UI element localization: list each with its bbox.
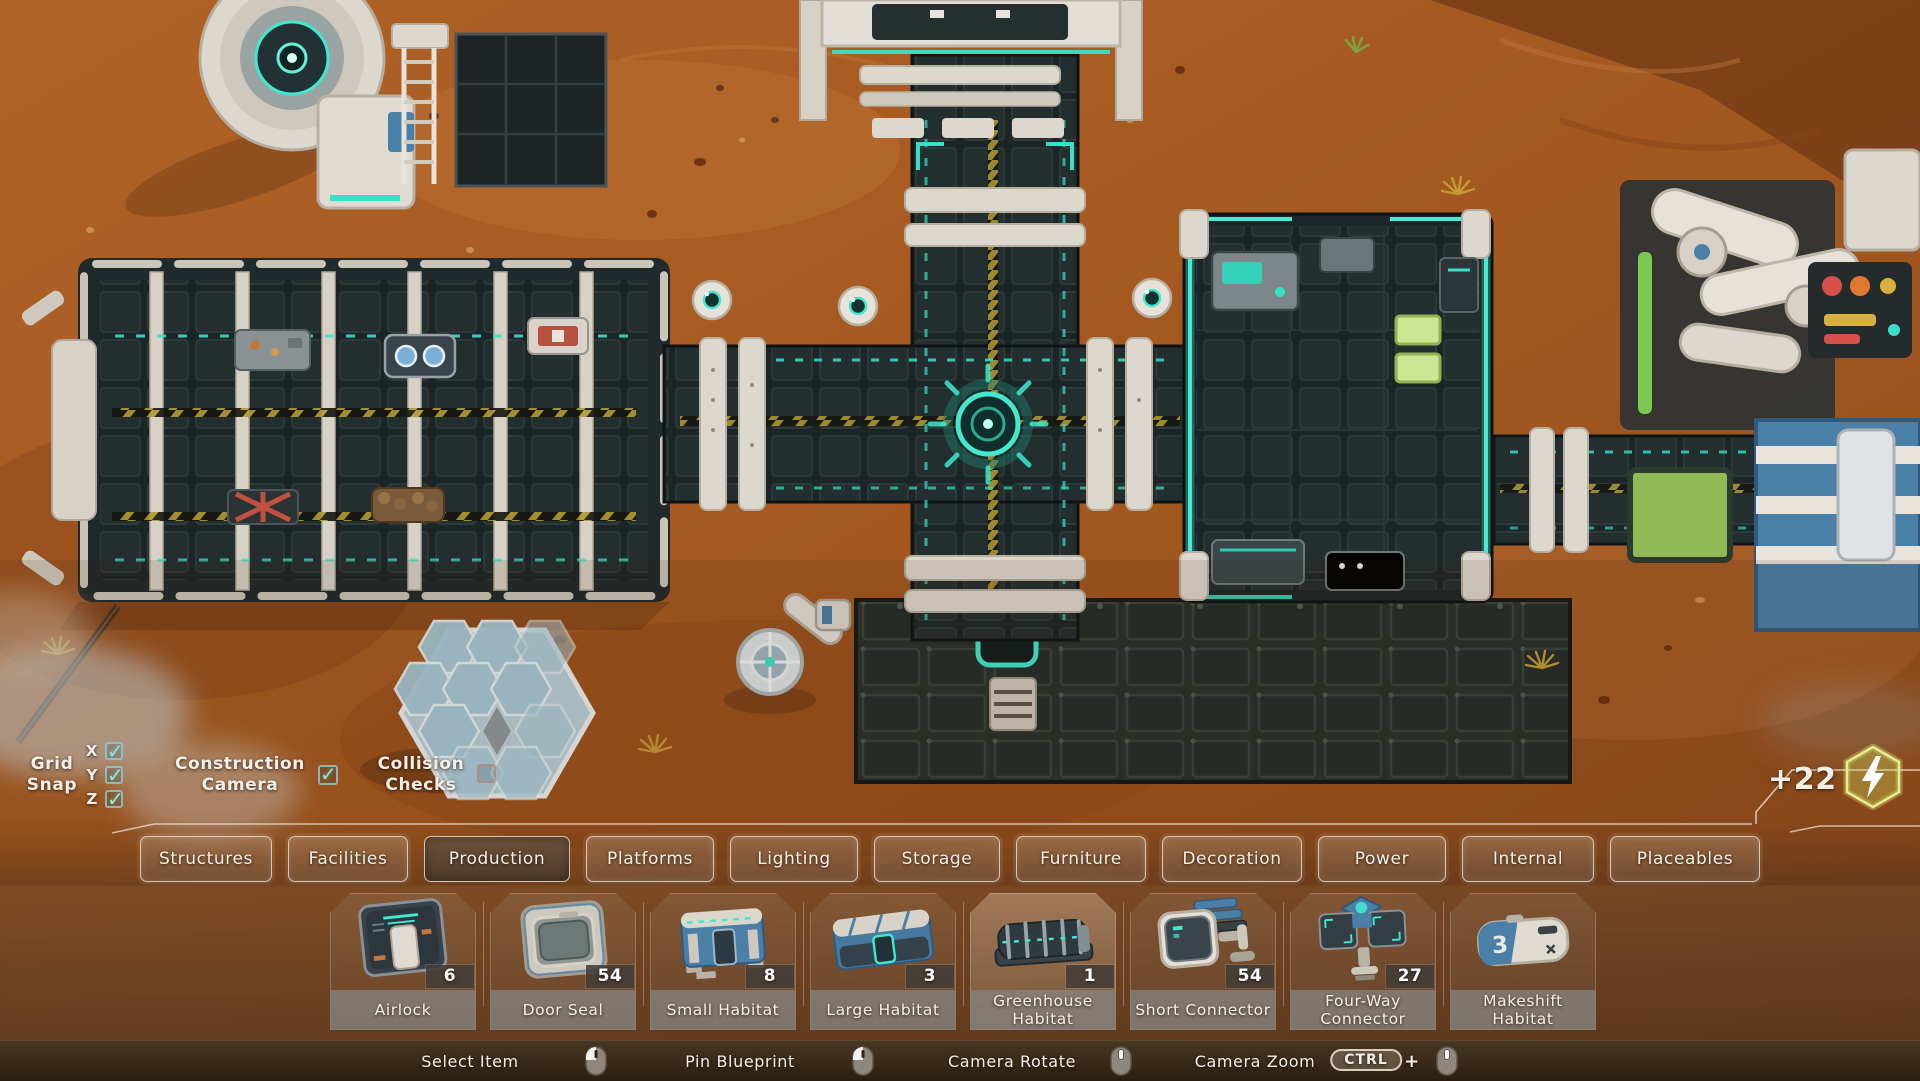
item-name: Makeshift Habitat: [1450, 990, 1596, 1030]
tab-structures[interactable]: Structures: [140, 836, 272, 882]
machine-red: [528, 318, 588, 354]
item-name: Greenhouse Habitat: [970, 990, 1116, 1030]
axis-z-label: Z: [78, 790, 98, 808]
card-separator: [643, 902, 644, 1006]
tab-placeables[interactable]: Placeables: [1610, 836, 1760, 882]
tab-production[interactable]: Production: [424, 836, 570, 882]
collision-checks-checkbox[interactable]: [477, 764, 496, 783]
item-count-badge: 6: [426, 965, 474, 988]
item-card-makeshift-habitat[interactable]: 3 Makeshift Habitat: [1450, 893, 1596, 1030]
card-separator: [963, 902, 964, 1006]
card-separator: [1443, 902, 1444, 1006]
hint-camera-zoom: Camera Zoom: [1195, 1052, 1316, 1071]
item-name: Large Habitat: [810, 990, 956, 1030]
item-count-badge: 3: [906, 965, 954, 988]
build-items-panel: [0, 885, 1920, 1040]
floor-emblem: [930, 366, 1046, 482]
plus-sign: +: [1404, 1051, 1420, 1072]
mouse-left-icon: [852, 1046, 874, 1076]
item-count-badge: 1: [1066, 965, 1114, 988]
mouse-left-icon: [585, 1046, 607, 1076]
item-card-airlock[interactable]: 6 Airlock: [330, 893, 476, 1030]
tab-decoration[interactable]: Decoration: [1162, 836, 1302, 882]
power-value: +22: [1768, 762, 1837, 797]
right-habitat-module: [1180, 210, 1492, 602]
item-name: Door Seal: [490, 990, 636, 1030]
red-frame-item: [228, 490, 298, 524]
card-separator: [803, 902, 804, 1006]
collision-checks-label: Collision Checks: [346, 754, 496, 796]
construction-camera-label: Construction Camera: [165, 754, 315, 796]
item-count-badge: 27: [1386, 965, 1434, 988]
grid-snap-x-checkbox[interactable]: ✓: [105, 742, 123, 760]
ctrl-key-badge: CTRL: [1330, 1049, 1402, 1071]
hint-bar: Select Item Pin Blueprint Camera Rotate …: [0, 1040, 1920, 1081]
item-count-badge: 8: [746, 965, 794, 988]
grid-snap-label: Grid Snap: [22, 754, 82, 796]
hint-select-item: Select Item: [421, 1052, 518, 1071]
axis-y-label: Y: [78, 766, 98, 784]
mouse-middle-icon: [1110, 1046, 1132, 1076]
grid-snap-z-checkbox[interactable]: ✓: [105, 790, 123, 808]
item-card-greenhouse-habitat[interactable]: 1 Greenhouse Habitat: [970, 893, 1116, 1030]
grid-snap-y-checkbox[interactable]: ✓: [105, 766, 123, 784]
colorful-machine: [1808, 262, 1912, 358]
item-count-badge: 54: [586, 965, 634, 988]
item-name: Short Connector: [1130, 990, 1276, 1030]
tab-storage[interactable]: Storage: [874, 836, 1000, 882]
tab-power[interactable]: Power: [1318, 836, 1446, 882]
tab-platforms[interactable]: Platforms: [586, 836, 714, 882]
svg-text:3: 3: [1491, 931, 1509, 959]
item-card-short-connector[interactable]: 54 Short Connector: [1130, 893, 1276, 1030]
tab-lighting[interactable]: Lighting: [730, 836, 858, 882]
construction-camera-checkbox[interactable]: ✓: [318, 765, 338, 785]
item-card-large-habitat[interactable]: 3 Large Habitat: [810, 893, 956, 1030]
hint-camera-rotate: Camera Rotate: [948, 1052, 1076, 1071]
tab-facilities[interactable]: Facilities: [288, 836, 408, 882]
card-separator: [1123, 902, 1124, 1006]
makeshift-habitat-thumbnail: 3: [1464, 893, 1582, 985]
card-separator: [483, 902, 484, 1006]
machine-blue: [385, 335, 455, 377]
mouse-middle-icon: [1436, 1046, 1458, 1076]
workbench: [235, 330, 310, 370]
power-icon: [1842, 744, 1904, 810]
axis-x-label: X: [78, 742, 98, 760]
item-card-door-seal[interactable]: 54 Door Seal: [490, 893, 636, 1030]
hint-pin-blueprint: Pin Blueprint: [685, 1052, 795, 1071]
log-pile: [372, 488, 444, 522]
item-name: Airlock: [330, 990, 476, 1030]
tab-internal[interactable]: Internal: [1462, 836, 1594, 882]
tab-furniture[interactable]: Furniture: [1016, 836, 1146, 882]
item-count-badge: 54: [1226, 965, 1274, 988]
item-name: Four-Way Connector: [1290, 990, 1436, 1030]
item-card-four-way-connector[interactable]: 27 Four-Way Connector: [1290, 893, 1436, 1030]
item-card-small-habitat[interactable]: 8 Small Habitat: [650, 893, 796, 1030]
card-separator: [1283, 902, 1284, 1006]
item-name: Small Habitat: [650, 990, 796, 1030]
